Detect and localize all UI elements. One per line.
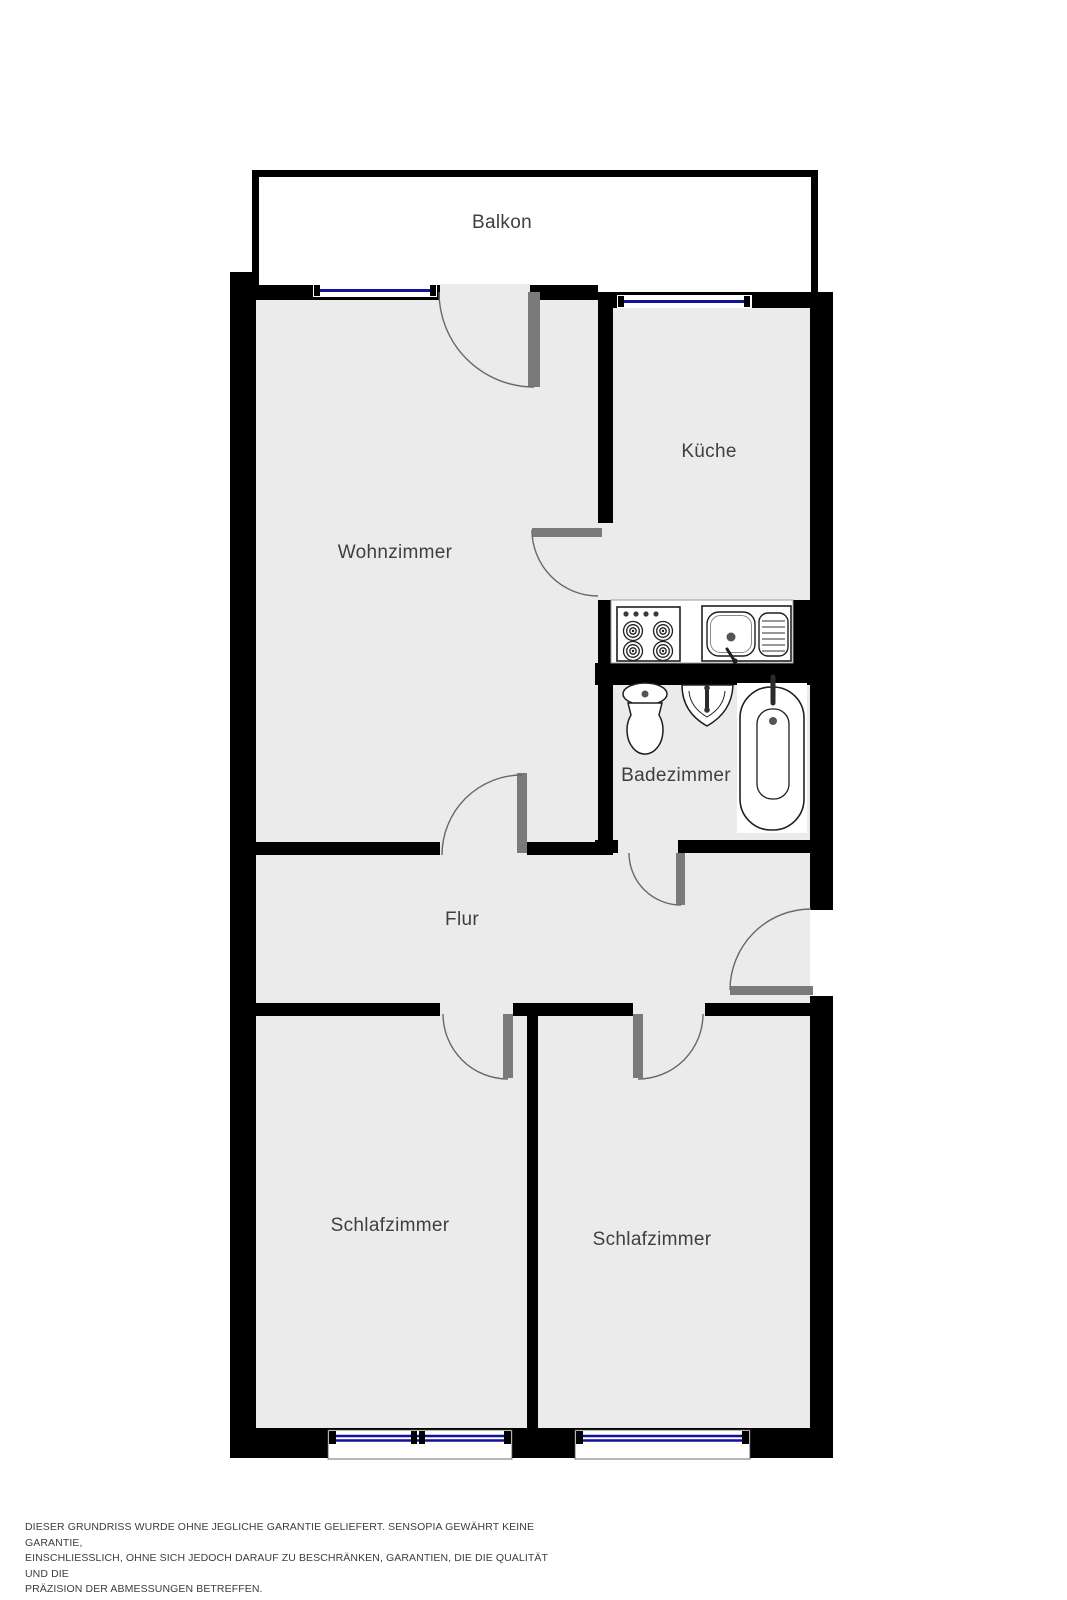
window-living-room [313,284,437,297]
door-leaf [676,853,685,905]
window-cap [618,296,624,307]
door-leaf [517,773,527,853]
living-room-door-opening [440,843,517,855]
bedroom-left-door-opening [440,1003,503,1016]
balcony-door-opening [440,284,530,302]
wall-counter-right [793,600,810,663]
stove-4-burner-icon [617,607,680,661]
wall-hall-bottom-right [705,1003,833,1016]
door-leaf [503,1014,513,1078]
wall-living-bottom-right [527,842,613,855]
door-leaf [528,292,540,387]
bathroom-door-opening [618,840,678,853]
room-label-badezimmer: Badezimmer [621,765,731,787]
disclaimer-line: PRÄZISION DER ABMESSUNGEN BETREFFEN. [25,1582,565,1598]
wall-exterior-right-upper [810,292,833,910]
disclaimer-line: EINSCHLIESSLICH, OHNE SICH JEDOCH DARAUF… [25,1551,565,1582]
floor-plan: Balkon Küche Wohnzimmer Badezimmer Flur … [0,0,1067,1600]
room-label-schlafzimmer-links: Schlafzimmer [331,1215,450,1237]
bedroom-right-door-opening [643,1003,703,1016]
room-label-schlafzimmer-rechts: Schlafzimmer [593,1229,712,1251]
room-label-wohnzimmer: Wohnzimmer [338,542,453,564]
bedroom-right-floor [538,1010,810,1430]
wall-kitchen-bath-divider [595,663,833,685]
living-room-floor [256,292,598,843]
wall-living-bottom-left [230,842,440,855]
bathtub-icon [737,677,807,833]
window-kitchen [617,295,752,308]
hallway-floor [256,845,810,1015]
window-cap [742,1431,749,1444]
wall-exterior-right-lower [810,996,833,1458]
window-bedroom-right [575,1430,750,1459]
floor-plan-canvas [0,0,1067,1600]
wall-exterior-left [230,272,256,1458]
window-mid-divider [411,1431,417,1444]
door-leaf [730,986,813,995]
door-leaf [633,1014,643,1078]
room-label-flur: Flur [445,909,479,931]
room-label-balkon: Balkon [472,212,532,234]
kitchen-sink-drainboard-icon [702,606,791,664]
door-leaf [532,528,602,537]
window-mid-divider [419,1431,425,1444]
wall-hall-bottom-left [230,1003,440,1016]
wall-bedroom-divider [527,1016,538,1430]
kitchen-counter-group [611,600,793,664]
balcony-wall-right [811,170,818,292]
window-cap [430,285,436,296]
balcony-floor [259,177,811,290]
toilet-icon [623,683,667,754]
window-cap [314,285,320,296]
window-cap [744,296,750,307]
wall-hall-bottom-middle [513,1003,633,1016]
window-cap [329,1431,336,1444]
wall-living-kitchen-upper [598,292,613,523]
wall-bath-bottom-right [678,840,833,853]
window-bedroom-left [328,1430,512,1459]
window-cap [576,1431,583,1444]
balcony-wall-top [252,170,818,177]
window-cap [504,1431,511,1444]
window-frame [575,1430,750,1459]
disclaimer-line: DIESER GRUNDRISS WURDE OHNE JEGLICHE GAR… [25,1520,565,1551]
room-label-kueche: Küche [681,441,736,463]
disclaimer-text: DIESER GRUNDRISS WURDE OHNE JEGLICHE GAR… [25,1520,565,1598]
